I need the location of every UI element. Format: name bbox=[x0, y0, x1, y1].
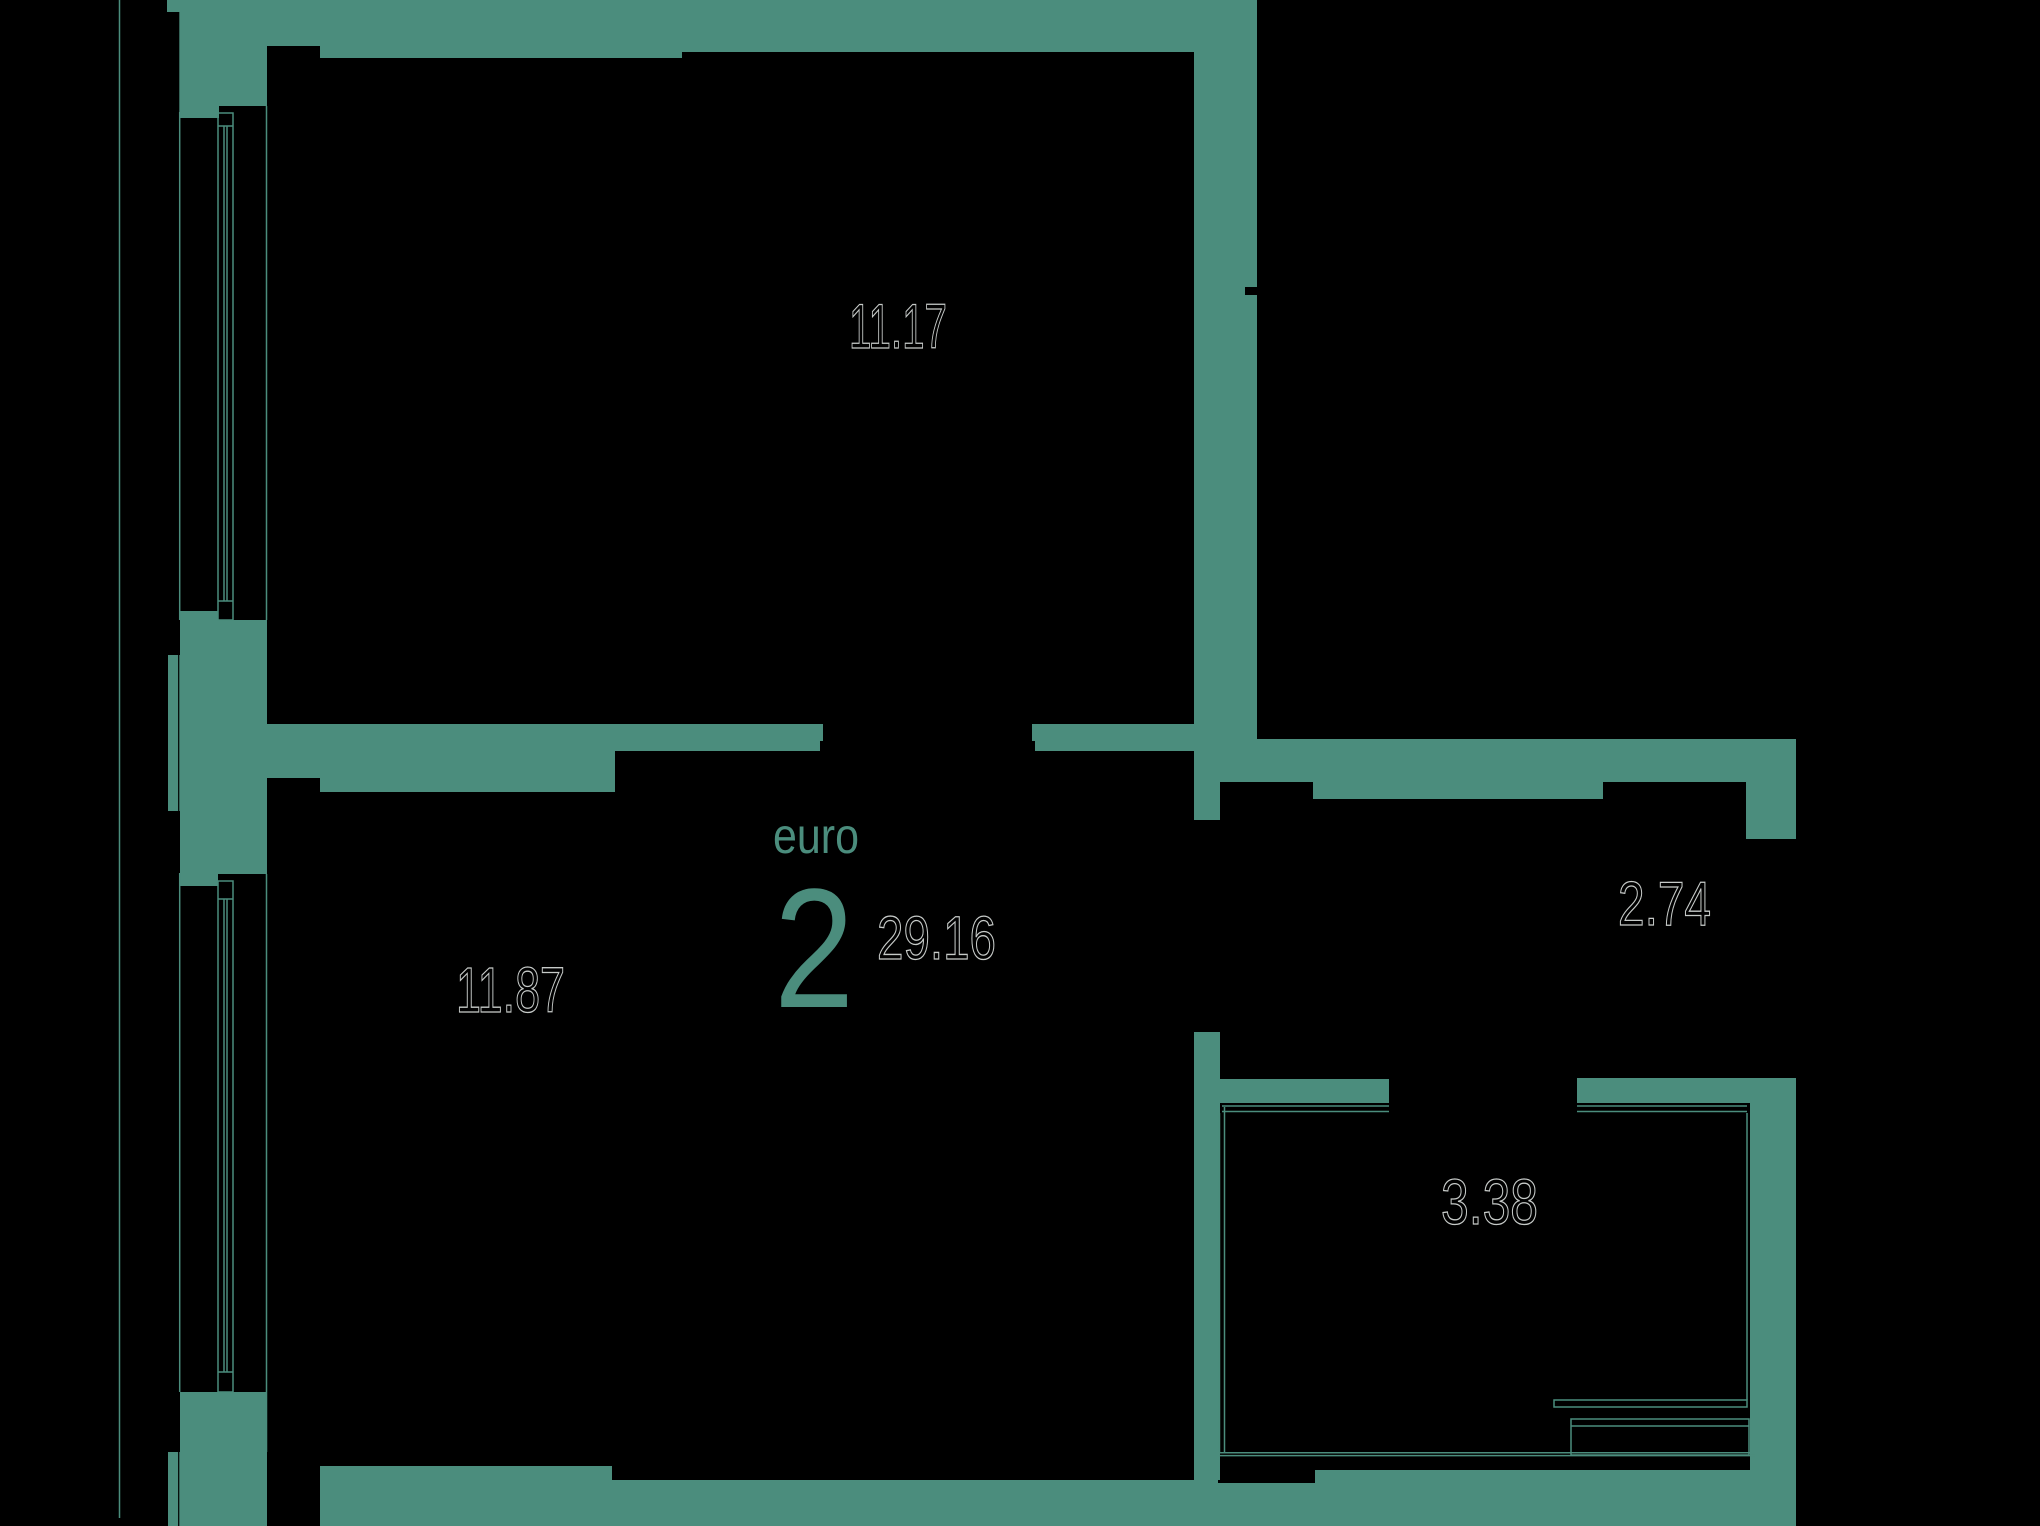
svg-text:11.17: 11.17 bbox=[849, 292, 947, 362]
svg-text:29.16: 29.16 bbox=[877, 904, 996, 972]
svg-text:3.38: 3.38 bbox=[1441, 1166, 1538, 1238]
svg-text:2.74: 2.74 bbox=[1618, 870, 1711, 939]
svg-text:2: 2 bbox=[774, 854, 854, 1044]
svg-text:11.87: 11.87 bbox=[456, 954, 565, 1026]
